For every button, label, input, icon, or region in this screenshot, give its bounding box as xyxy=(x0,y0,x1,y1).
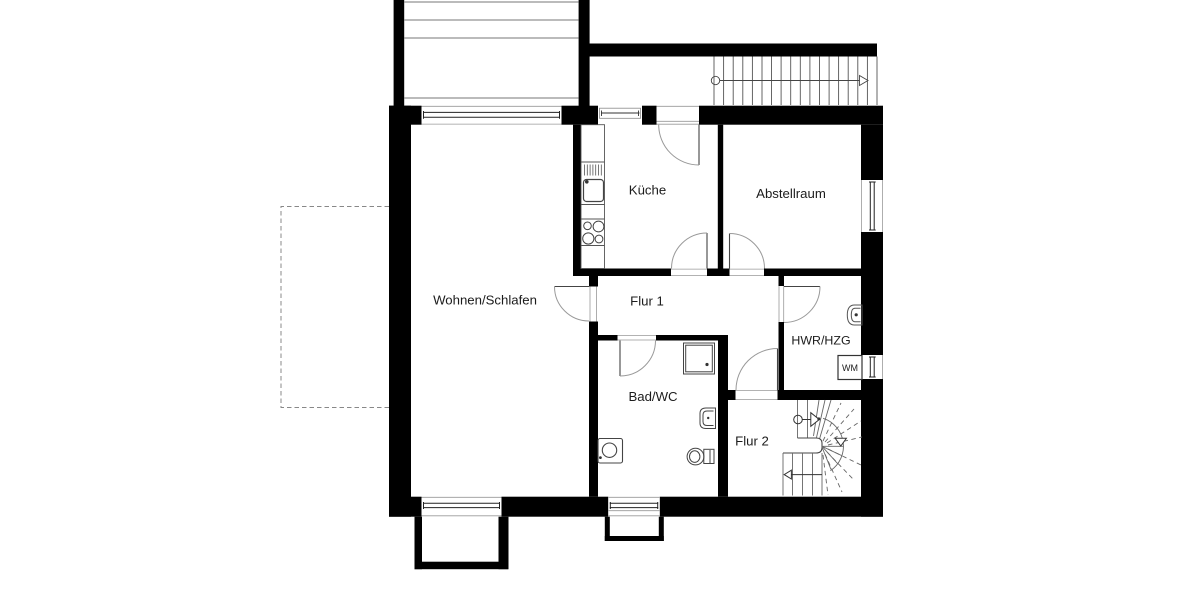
svg-text:HWR/HZG: HWR/HZG xyxy=(791,334,850,348)
svg-text:Wohnen/Schlafen: Wohnen/Schlafen xyxy=(433,293,537,308)
svg-text:Flur 2: Flur 2 xyxy=(735,434,769,449)
svg-text:Bad/WC: Bad/WC xyxy=(628,389,678,404)
svg-text:Küche: Küche xyxy=(629,183,666,198)
svg-text:Abstellraum: Abstellraum xyxy=(756,186,826,201)
svg-text:WM: WM xyxy=(842,363,858,373)
svg-text:Flur 1: Flur 1 xyxy=(630,294,664,309)
